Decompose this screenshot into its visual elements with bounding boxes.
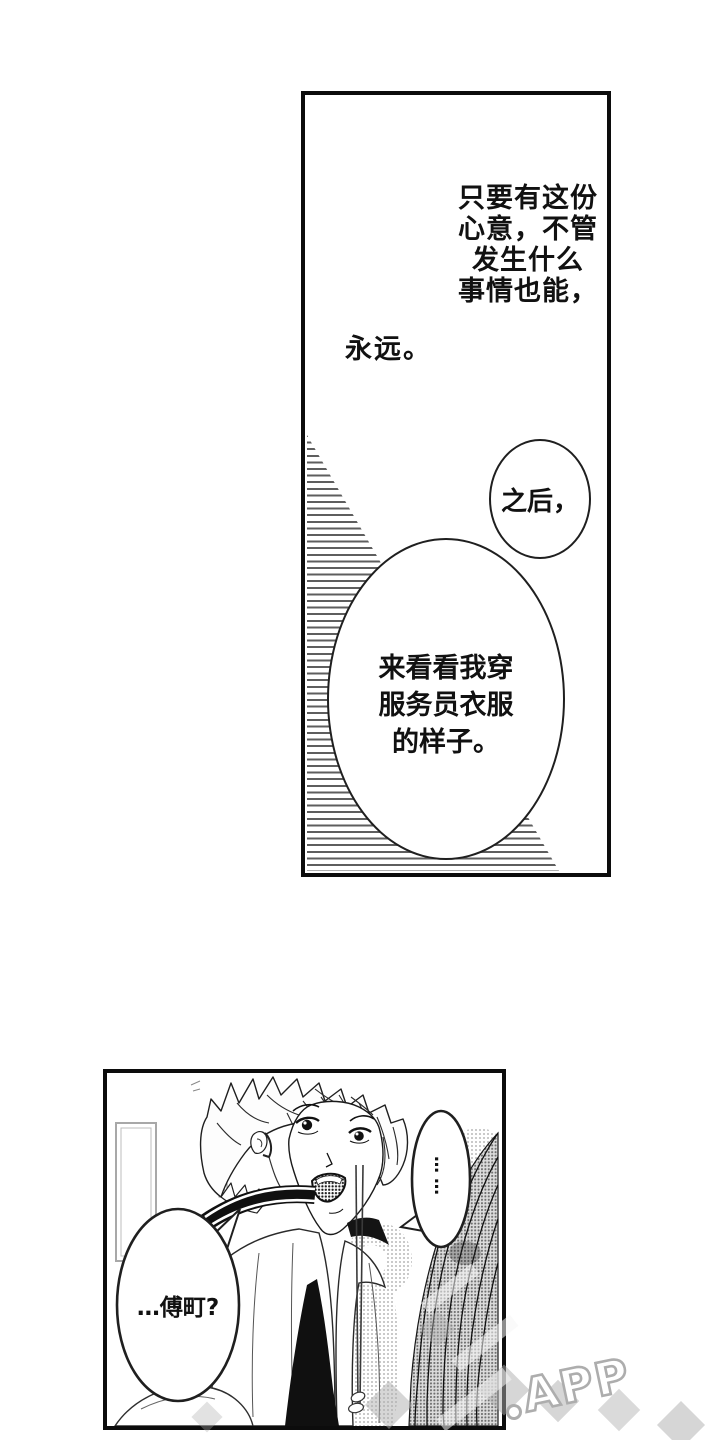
neck-line — [269, 1157, 283, 1191]
panel-monologue: 只要有这份 心意，不管 发生什么 事情也能， 永远。 之后， 来看看我穿 服务员… — [301, 91, 611, 877]
speech-bubble-large: 来看看我穿 服务员衣服 的样子。 — [327, 538, 565, 860]
speech-bubble-name: …傅町? — [117, 1285, 239, 1325]
bubble-line: 的样子。 — [379, 724, 514, 761]
speech-bubble-large-text: 来看看我穿 服务员衣服 的样子。 — [379, 650, 514, 761]
speech-bubble-name-text: …傅町? — [137, 1288, 219, 1322]
manga-page: 只要有这份 心意，不管 发生什么 事情也能， 永远。 之后， 来看看我穿 服务员… — [0, 0, 720, 1440]
watermark-shape — [537, 1380, 579, 1422]
narration-line: 心意，不管 — [453, 214, 603, 245]
character-ear — [251, 1132, 271, 1157]
panel-scene: …… …傅町? — [103, 1069, 506, 1430]
narration-block: 只要有这份 心意，不管 发生什么 事情也能， — [453, 183, 603, 307]
watermark-shape — [598, 1389, 640, 1431]
speech-bubble-small-text: 之后， — [501, 481, 579, 518]
bubble-line: 服务员衣服 — [379, 687, 514, 724]
watermark-ring — [505, 1403, 524, 1422]
narration-tail: 永远。 — [345, 327, 432, 366]
narration-line: 发生什么 — [453, 245, 603, 276]
speech-bubble-ellipsis: …… — [409, 1111, 471, 1245]
narration-line: 只要有这份 — [453, 183, 603, 214]
speech-bubble-small: 之后， — [489, 439, 591, 559]
stray-hair-marks — [191, 1081, 200, 1091]
narration-line: 事情也能， — [453, 276, 603, 307]
watermark-shape — [657, 1401, 705, 1440]
speech-bubble-ellipsis-text: …… — [430, 1156, 450, 1200]
watermark-app-label: APP — [518, 1347, 636, 1422]
character-face — [289, 1101, 383, 1234]
bubble-line: 来看看我穿 — [379, 650, 514, 687]
